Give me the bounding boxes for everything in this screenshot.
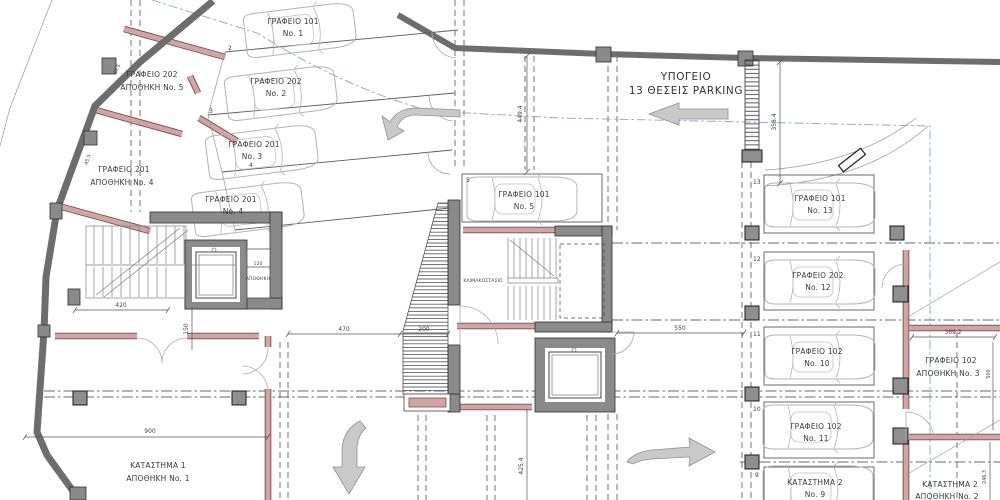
stall-label: ΚΑΤΑΣΤΗΜΑ 2 xyxy=(787,478,843,487)
floor-plan-page: 449.4 358.4 550 470 200 420 150 120 900 … xyxy=(0,0,1000,500)
dimension-text: 550 xyxy=(674,325,686,332)
center-stairwell xyxy=(508,226,612,332)
stall-label: ΓΡΑΦΕΙΟ 201 xyxy=(228,140,280,149)
stall-tag: 2 xyxy=(228,45,232,52)
stall-label: No. 1 xyxy=(283,29,304,38)
dimension-text: 420 xyxy=(115,302,127,309)
room-label: ΑΠΟΘΗΚΗ xyxy=(246,276,270,282)
dimension-text: 45.5 xyxy=(84,154,93,166)
dimension-text: 358.4 xyxy=(771,113,778,130)
room-label: ΑΠΟΘΗΚΗ No. 5 xyxy=(120,83,183,92)
stall-label: No. 3 xyxy=(242,152,263,161)
stall-tag: 10 xyxy=(753,406,761,413)
room-label: ΑΠΟΘΗΚΗ No. 2 xyxy=(915,492,978,500)
top-wall xyxy=(398,15,1000,66)
stall-label: ΓΡΑΦΕΙΟ 202 xyxy=(250,77,302,86)
exit-arrow-right-icon xyxy=(627,438,715,466)
room-label: ΓΡΑΦΕΙΟ 201 xyxy=(98,165,150,174)
car-icon xyxy=(765,179,875,231)
dimensions: 449.4 358.4 550 470 200 420 150 120 900 … xyxy=(23,53,997,500)
stall-tag: 4 xyxy=(249,162,253,169)
room-label: ΑΠΟΘΗΚΗ No. 4 xyxy=(90,178,153,187)
room-label: ΚΛΙΜΑΚΟΣΤΑΣΙΟ xyxy=(463,278,503,284)
room-label: ΚΑΤΑΣΤΗΜΑ 1 xyxy=(130,461,186,470)
stall-label: No. 12 xyxy=(805,283,831,292)
stall-tag: 13 xyxy=(753,179,761,186)
dimension-text: 425.4 xyxy=(518,457,525,474)
car-icon xyxy=(467,173,577,225)
room-label: ΚΑΤΑΣΤΗΜΑ 2 xyxy=(922,480,978,489)
car-icon xyxy=(765,331,875,383)
stall-label: No. 13 xyxy=(807,206,833,215)
plan-title: ΥΠΟΓΕΙΟ 13 ΘΕΣΕΙΣ PARKING xyxy=(629,71,743,97)
dimension-text: 449.4 xyxy=(517,105,524,122)
dimension-text: 120 xyxy=(253,261,262,267)
property-line xyxy=(0,0,52,146)
stall-label: ΓΡΑΦΕΙΟ 101 xyxy=(498,190,550,199)
entry-turn-arrow-icon xyxy=(382,108,460,140)
room-label: ΓΡΑΦΕΙΟ 102 xyxy=(925,356,977,365)
stall-tag: 12 xyxy=(753,256,761,263)
ramp xyxy=(403,200,460,412)
plan-title-line1: ΥΠΟΓΕΙΟ xyxy=(660,71,712,83)
parking-stalls-right xyxy=(764,175,874,500)
stall-label: No. 11 xyxy=(803,434,829,443)
aisle-arrow-left-icon xyxy=(649,103,728,125)
ramp-turn-arrow-icon xyxy=(333,421,366,494)
stall-label: No. 4 xyxy=(223,207,244,216)
stall-label: No. 2 xyxy=(266,89,287,98)
dimension-text: 246.3 xyxy=(982,470,988,484)
stall-label: ΓΡΑΦΕΙΟ 202 xyxy=(792,271,844,280)
gate-marker xyxy=(839,148,866,172)
stall-label: ΓΡΑΦΕΙΟ 102 xyxy=(790,422,842,431)
retaining-wall-hatched xyxy=(742,60,762,162)
stall-label: ΓΡΑΦΕΙΟ 102 xyxy=(791,347,843,356)
stall-label: No. 10 xyxy=(804,359,830,368)
dimension-text: 500 xyxy=(986,369,992,378)
stall-tag: 9 xyxy=(755,472,759,479)
dimension-text: 369.2 xyxy=(944,329,961,336)
stall-label: No. 5 xyxy=(514,202,535,211)
stall-label: ΓΡΑΦΕΙΟ 201 xyxy=(205,195,257,204)
stall-tag: 5 xyxy=(466,177,470,184)
stall-label: No. 9 xyxy=(805,490,826,499)
room-label: ΑΠΟΘΗΚΗ No. 3 xyxy=(916,369,979,378)
left-core-block xyxy=(68,212,282,309)
stall-tag: 3 xyxy=(209,108,213,115)
plan-title-line2: 13 ΘΕΣΕΙΣ PARKING xyxy=(629,85,743,97)
dimension-text: 150 xyxy=(183,323,190,335)
room-label: ΑΠΟΘΗΚΗ No. 1 xyxy=(126,474,189,483)
car-icon xyxy=(765,256,875,308)
floor-plan-drawing: 449.4 358.4 550 470 200 420 150 120 900 … xyxy=(0,0,1000,500)
storage-room-small xyxy=(247,249,270,298)
dimension-text: 200 xyxy=(418,326,430,333)
cars xyxy=(190,0,875,500)
stall-label: ΓΡΑΦΕΙΟ 101 xyxy=(794,194,846,203)
car-icon xyxy=(190,176,306,241)
room-label: ΓΡΑΦΕΙΟ 202 xyxy=(126,70,178,79)
elevator-center xyxy=(535,338,615,412)
dimension-text: 470 xyxy=(338,326,350,333)
stall-tag: 11 xyxy=(753,331,761,338)
drive-arrows xyxy=(333,103,728,494)
dimension-text: 900 xyxy=(144,428,156,435)
stall-label: ΓΡΑΦΕΙΟ 101 xyxy=(267,17,319,26)
